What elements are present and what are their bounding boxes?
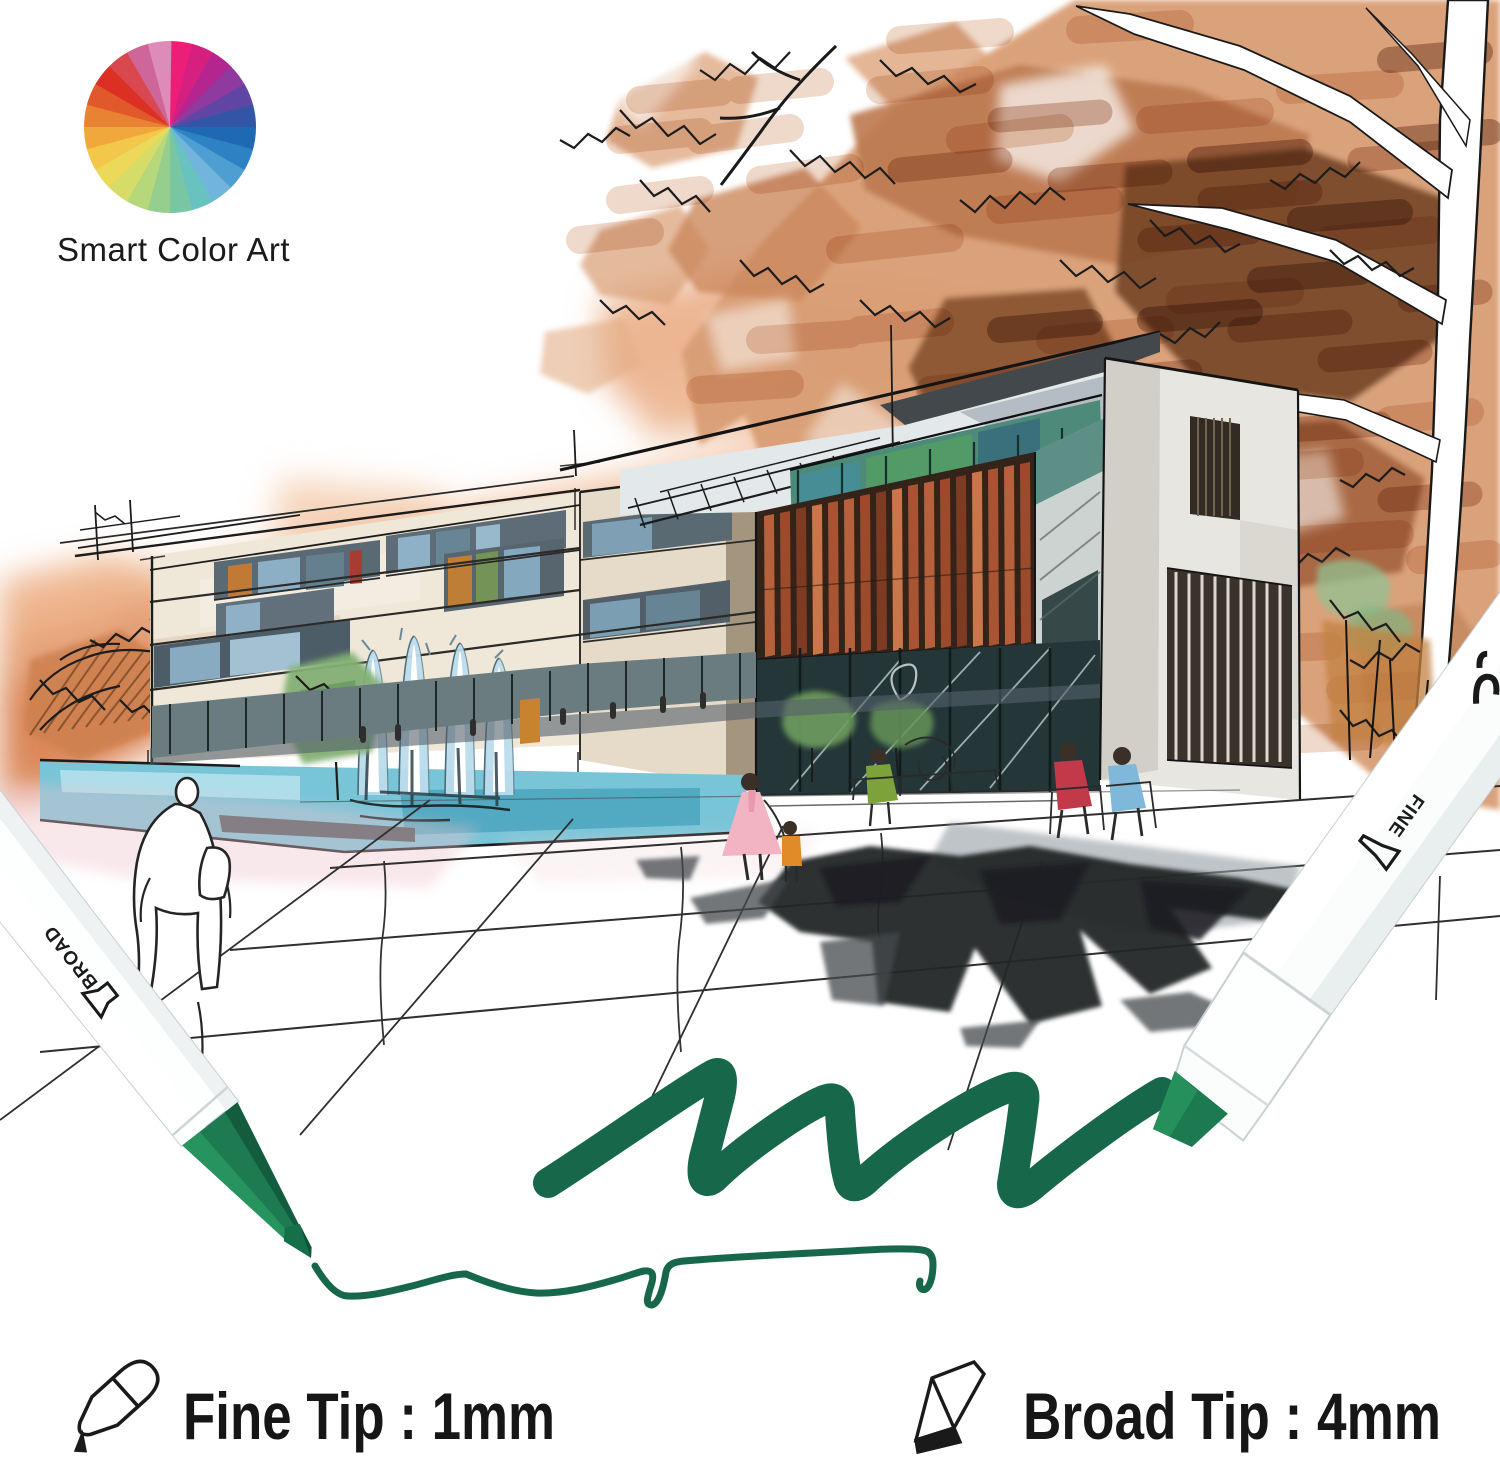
svg-text:Smart Color Art: Smart Color Art (57, 231, 290, 268)
svg-text:Broad Tip : 4mm: Broad Tip : 4mm (1023, 1379, 1441, 1453)
svg-text:Fine Tip : 1mm: Fine Tip : 1mm (183, 1379, 555, 1453)
